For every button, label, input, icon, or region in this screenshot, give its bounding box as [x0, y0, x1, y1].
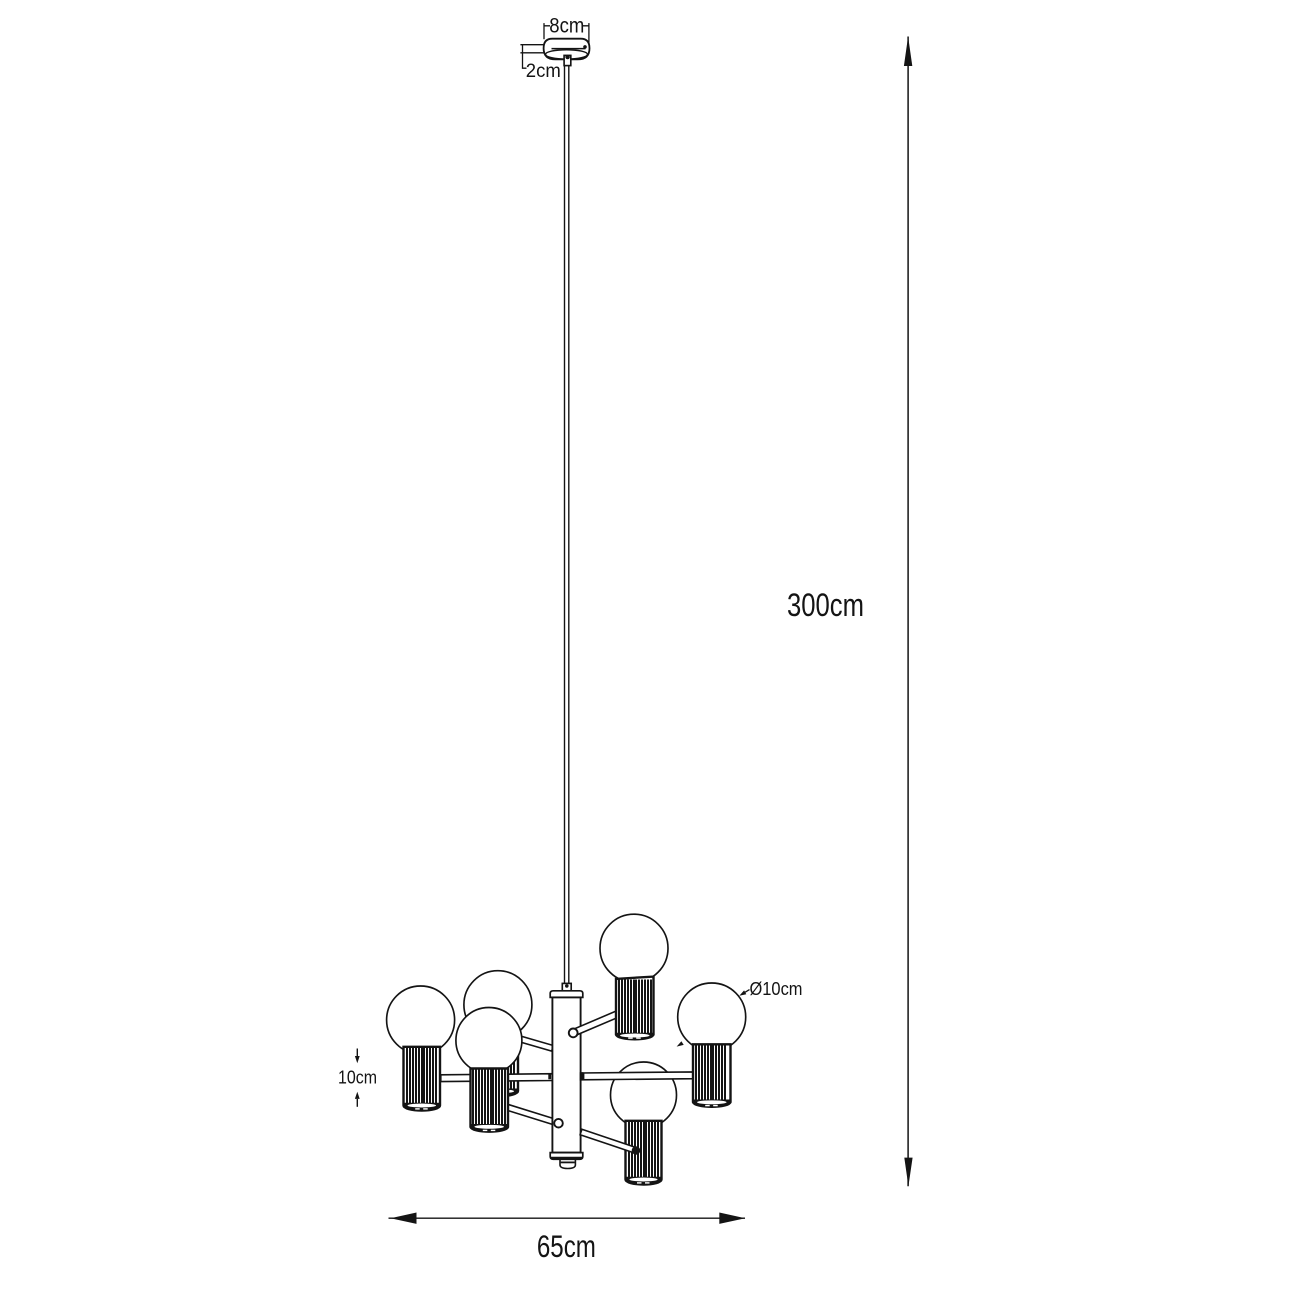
svg-text:300cm: 300cm [787, 587, 864, 623]
svg-text:65cm: 65cm [537, 1228, 596, 1264]
svg-text:Ø10cm: Ø10cm [750, 979, 803, 999]
svg-text:10cm: 10cm [338, 1067, 377, 1088]
svg-text:8cm: 8cm [549, 14, 584, 37]
svg-text:2cm: 2cm [526, 61, 561, 82]
